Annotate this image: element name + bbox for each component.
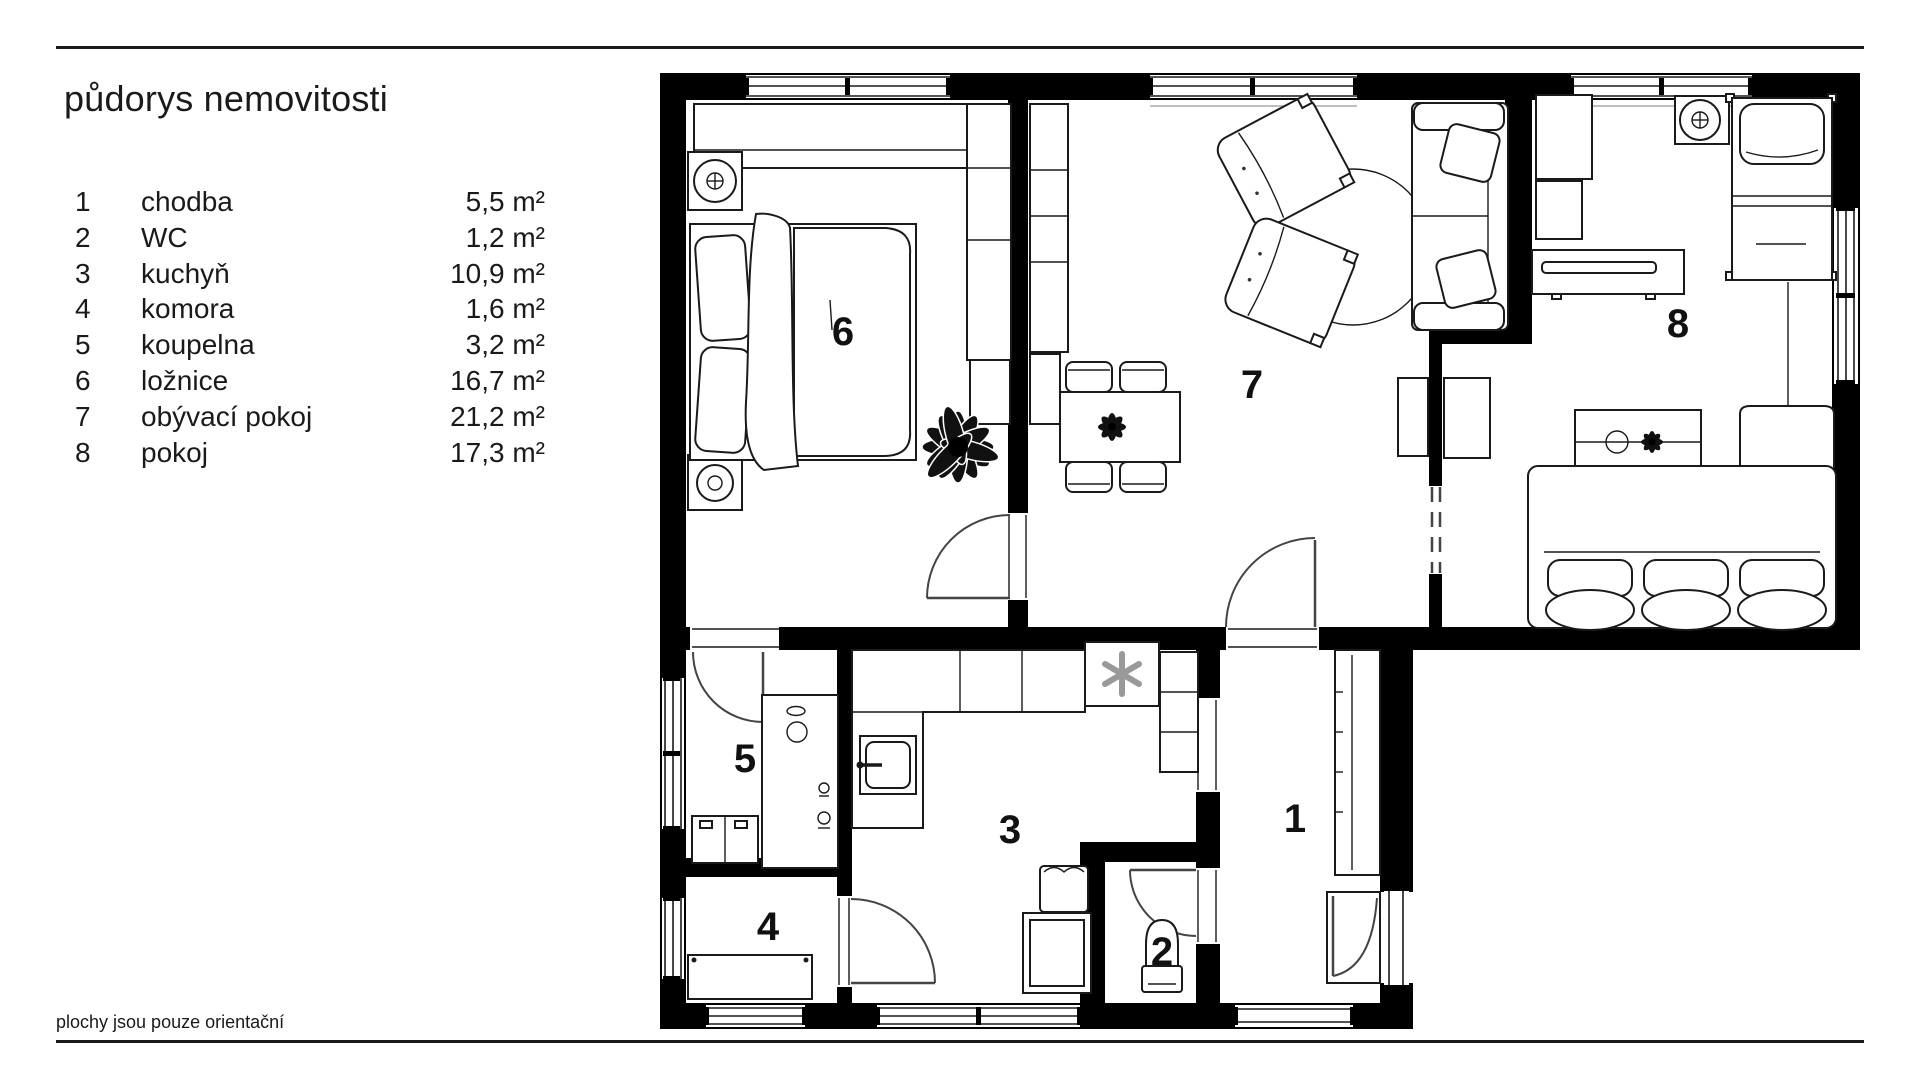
window-room8-side [1834,206,1858,385]
kitchen-chair [1040,866,1088,912]
door-arc-pantry [851,899,935,983]
table-flower-icon [1098,413,1126,441]
door-arc-bathroom [693,652,763,722]
seat-cushion [1642,590,1730,630]
dashed-opening [1427,486,1444,574]
seat-cushion [1546,590,1634,630]
freezer [1085,642,1159,706]
kitchen-tall-cabinet [1160,652,1198,772]
armchair [1221,214,1359,347]
window-bottom-kitchen [875,1005,1082,1027]
double-bed [690,214,916,470]
room-label-chodba: 1 [1284,797,1306,841]
dining-table [1060,362,1180,492]
washbasin-cabinet [762,695,838,868]
bedroom-wardrobe [967,104,1011,360]
entrance-door [1233,1005,1355,1027]
dining-chair [1066,362,1112,392]
window-bottom-pantry [704,1005,807,1027]
pillow [694,234,751,341]
lamp-icon [697,465,733,501]
living-cabinet-column [1030,104,1068,352]
single-bed [1726,94,1836,280]
flower-icon [1641,431,1663,453]
furniture-bathroom [692,695,838,868]
washing-machine [692,816,758,863]
hallway-side-door [1384,891,1409,985]
window-pantry [662,896,684,981]
room-label-loznice: 6 [832,310,854,354]
furniture-bedroom [688,104,1011,510]
window-bedroom [744,75,951,98]
door-arc-bedroom [927,515,1010,598]
seat-cushion [1738,590,1826,630]
living-sideboard [1398,378,1428,456]
bed-throw [746,214,798,470]
floorplan-drawing: 6 7 8 5 3 1 4 2 [0,0,1920,1080]
sofa-chaise [1740,406,1834,468]
room8-desk [1532,250,1684,299]
room-label-kuchyn: 3 [999,808,1021,852]
room8-sideboard [1444,378,1490,458]
pillow [694,346,751,453]
window-bathroom [662,676,684,831]
dining-chair [1120,462,1166,492]
living-cabinet-low [1030,354,1060,424]
room-label-koupelna: 5 [734,737,756,781]
room8-cabinet [1536,95,1592,179]
furniture-pantry [688,955,812,999]
sofa-living [1412,103,1508,330]
room8-cabinet [1536,181,1582,239]
room-label-komora: 4 [757,905,780,949]
dining-chair [1066,462,1112,492]
window-living [1148,75,1358,106]
pantry-shelf [688,955,812,999]
room-label-pokoj: 8 [1667,302,1689,346]
room-label-obyvaci: 7 [1241,363,1263,407]
furniture-hallway [1327,650,1380,983]
bedroom-cabinet-low [970,360,1010,424]
floorplan-document: půdorys nemovitosti 1 chodba 5,5 m² 2 WC… [0,0,1920,1080]
hallway-closet [1327,892,1380,983]
hallway-wardrobe [1335,650,1380,875]
armchair [1213,94,1355,233]
dining-chair [1120,362,1166,392]
door-arc-living [1226,538,1315,627]
kitchen-sink [857,736,917,794]
room-label-wc: 2 [1151,930,1173,974]
pillow [1740,104,1824,164]
kitchen-table [1023,913,1091,993]
